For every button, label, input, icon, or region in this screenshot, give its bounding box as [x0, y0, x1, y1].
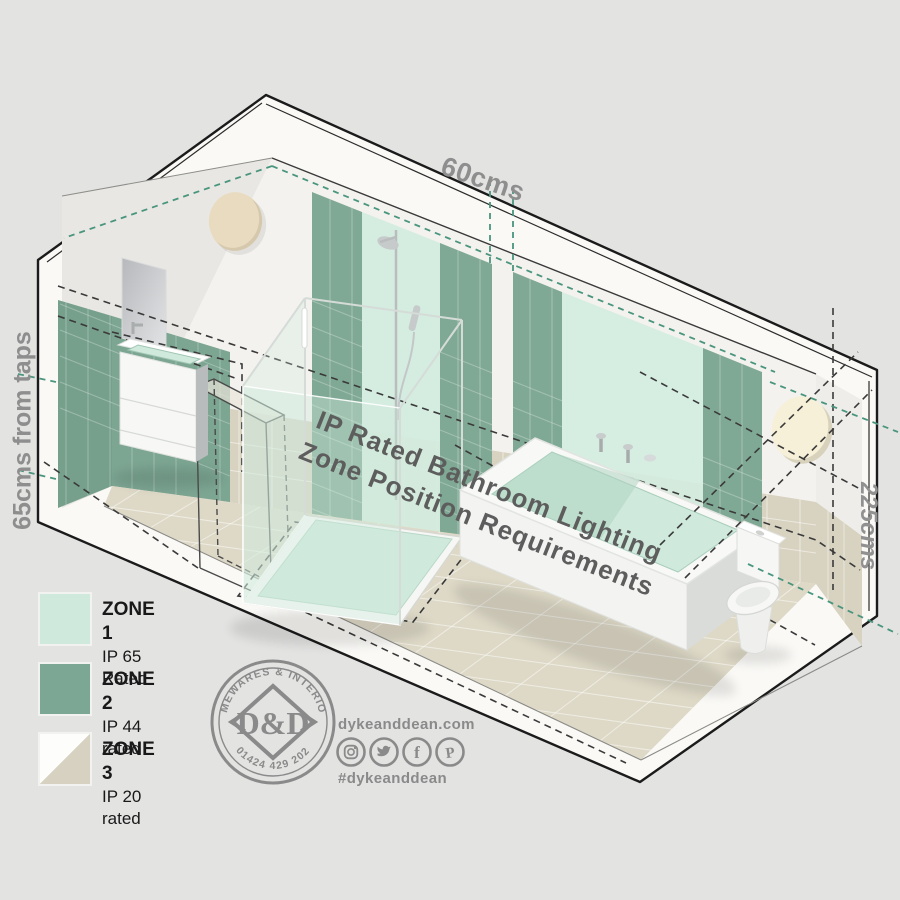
social-block: dykeanddean.com f P #dykeanddean	[338, 716, 475, 787]
zone1-label: ZONE 1	[102, 598, 155, 646]
hashtag-text: #dykeanddean	[338, 770, 447, 787]
wall-mirror	[122, 258, 166, 352]
svg-text:P: P	[445, 745, 456, 762]
instagram-icon	[338, 739, 365, 766]
facebook-icon: f	[404, 739, 431, 766]
logo-monogram: D&D	[237, 705, 310, 741]
brand-logo-badge: D&D HOMEWARES & INTERIORS 01424 429 202	[206, 651, 334, 783]
zone2-swatch	[38, 662, 92, 716]
zone3-swatch	[38, 732, 92, 786]
pinterest-icon: P	[437, 739, 464, 766]
measurement-right: 225cms	[854, 406, 882, 646]
svg-text:f: f	[414, 743, 420, 762]
zone2-label: ZONE 2	[102, 668, 155, 716]
twitter-icon	[371, 739, 398, 766]
diagram-stage: D&D HOMEWARES & INTERIORS 01424 429 202 …	[0, 0, 900, 900]
measurement-left: 65cms from taps	[9, 311, 38, 551]
zone3-rating: IP 20 rated	[102, 786, 155, 830]
website-text: dykeanddean.com	[338, 716, 475, 733]
zone1-swatch	[38, 592, 92, 646]
zone3-label: ZONE 3	[102, 738, 155, 786]
